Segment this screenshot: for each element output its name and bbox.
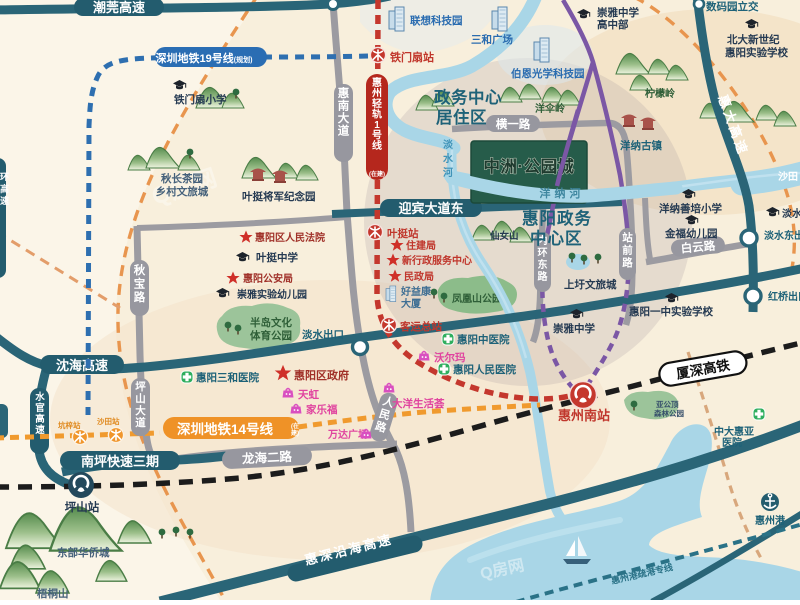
svg-text:政务中心: 政务中心 bbox=[434, 87, 502, 107]
svg-text:高中部: 高中部 bbox=[597, 18, 629, 31]
svg-text:联想科技园: 联想科技园 bbox=[410, 14, 463, 27]
svg-text:站前路: 站前路 bbox=[622, 231, 633, 269]
svg-text:潮莞高速: 潮莞高速 bbox=[93, 0, 145, 15]
svg-text:(在: (在 bbox=[291, 422, 299, 430]
svg-text:沙田站: 沙田站 bbox=[97, 416, 120, 426]
svg-text:大洋生活荟: 大洋生活荟 bbox=[392, 397, 445, 410]
svg-text:惠阳三和医院: 惠阳三和医院 bbox=[196, 371, 259, 384]
svg-text:横一路: 横一路 bbox=[496, 117, 531, 131]
svg-text:洋纳古镇: 洋纳古镇 bbox=[620, 139, 662, 152]
svg-text:崇雅实验幼儿园: 崇雅实验幼儿园 bbox=[237, 288, 307, 301]
svg-text:凤凰山公园: 凤凰山公园 bbox=[452, 292, 502, 305]
svg-text:迎宾大道东: 迎宾大道东 bbox=[398, 201, 463, 216]
svg-text:住建局: 住建局 bbox=[406, 239, 436, 252]
svg-text:金福幼儿园: 金福幼儿园 bbox=[664, 227, 718, 240]
svg-text:好益康: 好益康 bbox=[400, 285, 432, 298]
svg-text:坪山大道: 坪山大道 bbox=[135, 380, 146, 429]
svg-text:东部华侨城: 东部华侨城 bbox=[57, 546, 110, 559]
svg-text:(在建): (在建) bbox=[369, 170, 385, 178]
svg-text:中心区: 中心区 bbox=[530, 228, 583, 248]
svg-text:叶挺将军纪念园: 叶挺将军纪念园 bbox=[242, 190, 316, 203]
svg-text:崇雅中学: 崇雅中学 bbox=[597, 6, 639, 19]
svg-text:新行政服务中心: 新行政服务中心 bbox=[402, 254, 472, 267]
svg-text:沙田: 沙田 bbox=[778, 171, 798, 183]
svg-text:半岛文化: 半岛文化 bbox=[250, 316, 292, 329]
svg-text:北大新世纪: 北大新世纪 bbox=[727, 33, 780, 46]
svg-text:洋纳善培小学: 洋纳善培小学 bbox=[659, 202, 722, 215]
svg-text:铁门扇小学: 铁门扇小学 bbox=[174, 93, 227, 106]
svg-text:数码园立交: 数码园立交 bbox=[705, 0, 759, 13]
svg-text:居住区: 居住区 bbox=[436, 107, 487, 127]
svg-text:仙女山: 仙女山 bbox=[490, 230, 519, 242]
svg-text:体育公园: 体育公园 bbox=[250, 329, 292, 342]
svg-text:伯恩光学科技园: 伯恩光学科技园 bbox=[511, 67, 585, 80]
svg-text:梧桐山: 梧桐山 bbox=[37, 587, 69, 600]
svg-text:大厦: 大厦 bbox=[401, 297, 422, 310]
svg-text:惠南大道: 惠南大道 bbox=[338, 86, 350, 138]
svg-text:中大惠亚: 中大惠亚 bbox=[714, 425, 754, 438]
svg-text:叶挺站: 叶挺站 bbox=[387, 227, 419, 240]
svg-text:惠阳政务: 惠阳政务 bbox=[522, 208, 592, 228]
svg-text:家乐福: 家乐福 bbox=[306, 403, 338, 416]
svg-text:水官高速: 水官高速 bbox=[35, 391, 45, 436]
svg-text:沈海高速: 沈海高速 bbox=[56, 358, 108, 373]
svg-text:崇雅中学: 崇雅中学 bbox=[553, 322, 595, 335]
svg-text:乡村文旅城: 乡村文旅城 bbox=[156, 185, 209, 198]
svg-text:天虹: 天虹 bbox=[298, 388, 319, 401]
svg-text:惠阳区人民法院: 惠阳区人民法院 bbox=[255, 231, 325, 244]
svg-text:淡水中学: 淡水中学 bbox=[782, 207, 800, 220]
svg-text:秋宝路: 秋宝路 bbox=[134, 263, 146, 304]
svg-text:铁门扇站: 铁门扇站 bbox=[390, 50, 434, 64]
svg-text:惠阳一中实验学校: 惠阳一中实验学校 bbox=[629, 305, 713, 318]
svg-text:环高速: 环高速 bbox=[0, 172, 9, 206]
svg-text:医院: 医院 bbox=[722, 436, 742, 449]
svg-text:淡水出口: 淡水出口 bbox=[302, 328, 344, 341]
svg-text:惠州轻轨1号线: 惠州轻轨1号线 bbox=[371, 76, 382, 152]
svg-text:惠州南站: 惠州南站 bbox=[558, 408, 610, 423]
svg-text:三和广场: 三和广场 bbox=[471, 33, 513, 46]
svg-text:秋长茶园: 秋长茶园 bbox=[161, 172, 203, 185]
svg-text:惠阳区政府: 惠阳区政府 bbox=[294, 368, 349, 382]
svg-text:客运总站: 客运总站 bbox=[399, 320, 442, 333]
svg-text:洋纳河: 洋纳河 bbox=[540, 186, 585, 200]
svg-text:沃尔玛: 沃尔玛 bbox=[434, 351, 466, 364]
svg-text:洋伞岭: 洋伞岭 bbox=[535, 102, 565, 115]
svg-text:叶挺中学: 叶挺中学 bbox=[256, 251, 298, 264]
svg-text:柠檬岭: 柠檬岭 bbox=[645, 87, 675, 100]
svg-text:惠阳中医院: 惠阳中医院 bbox=[457, 333, 510, 346]
svg-text:惠阳公安局: 惠阳公安局 bbox=[243, 272, 293, 285]
svg-text:上圩文旅城: 上圩文旅城 bbox=[564, 278, 617, 291]
svg-text:坪山站: 坪山站 bbox=[65, 500, 100, 514]
svg-text:亚公顶: 亚公顶 bbox=[656, 400, 679, 409]
svg-text:深圳地铁14号线: 深圳地铁14号线 bbox=[177, 421, 274, 437]
svg-text:惠州港: 惠州港 bbox=[755, 514, 786, 527]
svg-text:惠阳实验学校: 惠阳实验学校 bbox=[725, 46, 788, 59]
svg-text:龙海二路: 龙海二路 bbox=[241, 449, 293, 467]
svg-text:坑梓站: 坑梓站 bbox=[58, 420, 81, 430]
svg-text:森林公园: 森林公园 bbox=[654, 408, 684, 418]
svg-text:淡水东出口: 淡水东出口 bbox=[764, 229, 800, 242]
svg-text:南坪快速三期: 南坪快速三期 bbox=[81, 454, 159, 469]
svg-text:民政局: 民政局 bbox=[404, 270, 434, 283]
svg-text:淡水河: 淡水河 bbox=[442, 139, 454, 179]
svg-text:惠阳人民医院: 惠阳人民医院 bbox=[453, 363, 516, 376]
svg-text:红桥出口: 红桥出口 bbox=[768, 290, 800, 303]
svg-text:建): 建) bbox=[291, 429, 299, 437]
